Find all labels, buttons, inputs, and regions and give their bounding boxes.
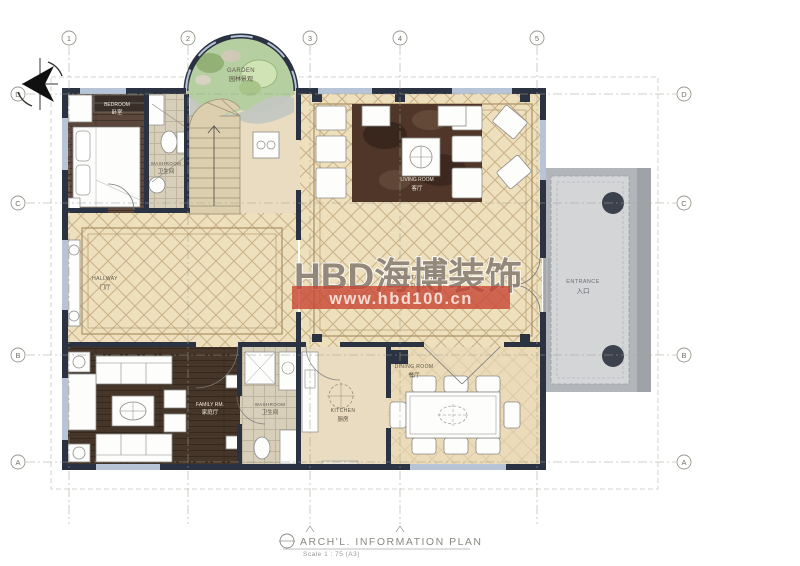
grid-bubble-col-1: 1 <box>62 31 76 45</box>
floor-plan-svg: GARDEN 园林景观 BEDROOM 卧室 WASHROOM 卫生间 LIVI… <box>0 0 800 566</box>
svg-text:3: 3 <box>308 34 312 43</box>
svg-text:A: A <box>681 458 686 467</box>
room-label-family-en: FAMILY RM. <box>196 402 224 408</box>
watermark-url: www.hbd100.cn <box>328 290 473 308</box>
sheet-title: ARCH'L. INFORMATION PLAN <box>300 536 483 548</box>
grid-bubble-row-d-left: D <box>11 87 25 101</box>
room-label-family-cn: 家庭厅 <box>202 408 219 416</box>
side-table <box>438 106 466 126</box>
room-label-garden-en: GARDEN <box>227 68 255 74</box>
grid-terminator-ticks <box>306 526 404 532</box>
room-label-hallway-en: HALLWAY <box>92 276 118 282</box>
room-label-washroom-top-cn: 卫生间 <box>158 167 175 175</box>
grid-bubble-row-a-left: A <box>11 455 25 469</box>
floor-plan-sheet: GARDEN 园林景观 BEDROOM 卧室 WASHROOM 卫生间 LIVI… <box>0 0 800 566</box>
chair <box>390 402 406 428</box>
svg-text:1: 1 <box>67 34 71 43</box>
north-arrow-icon <box>18 58 62 110</box>
room-label-washroom-bottom-en: WASHROOM <box>255 402 286 407</box>
svg-text:A: A <box>15 458 20 467</box>
stairs <box>189 99 240 214</box>
svg-text:2: 2 <box>186 34 190 43</box>
vanity <box>148 95 164 125</box>
armchair <box>452 136 482 162</box>
svg-text:4: 4 <box>398 34 402 43</box>
room-label-living-en: LIVING ROOM <box>400 177 433 183</box>
svg-text:B: B <box>681 351 686 360</box>
toilet <box>161 131 177 153</box>
chair <box>476 438 500 454</box>
grid-bubble-row-d-right: D <box>677 87 691 101</box>
chair <box>412 438 436 454</box>
grid-bubble-row-a-right: A <box>677 455 691 469</box>
side-table <box>362 106 390 126</box>
room-label-dining-en: DINING ROOM <box>395 364 434 370</box>
room-label-hallway-cn: 门厅 <box>99 283 111 291</box>
grid-bubble-row-b-right: B <box>677 348 691 362</box>
room-label-garden-cn: 园林景观 <box>229 75 253 83</box>
bedroom-furniture <box>68 95 146 210</box>
svg-text:5: 5 <box>535 34 539 43</box>
dining-table <box>406 392 500 438</box>
room-label-bedroom-en: BEDROOM <box>104 102 130 108</box>
room-label-entrance-cn: 入口 <box>577 287 590 295</box>
armchair <box>316 106 346 130</box>
sofa <box>68 374 96 430</box>
grid-bubble-row-c-right: C <box>677 196 691 210</box>
sink <box>149 177 165 193</box>
room-label-washroom-bottom-cn: 卫生间 <box>262 408 279 416</box>
grid-bubble-col-2: 2 <box>181 31 195 45</box>
hallway-console <box>68 240 80 326</box>
armchair <box>316 136 346 162</box>
svg-text:C: C <box>681 199 687 208</box>
svg-text:D: D <box>681 90 687 99</box>
title-block: ARCH'L. INFORMATION PLAN Scale 1 : 75 (A… <box>279 526 483 558</box>
speaker <box>68 444 90 462</box>
porch-column <box>602 345 624 367</box>
grid-bubble-row-c-left: C <box>11 196 25 210</box>
room-label-washroom-top-en: WASHROOM <box>151 161 182 166</box>
wardrobe <box>68 95 92 122</box>
sofa <box>316 168 346 198</box>
chair <box>444 438 468 454</box>
grid-bubble-row-b-left: B <box>11 348 25 362</box>
bed <box>73 127 140 207</box>
grid-column-bubbles: 1 2 3 4 5 <box>62 31 544 45</box>
room-label-living-cn: 客厅 <box>411 184 423 192</box>
room-label-kitchen-cn: 厨房 <box>337 415 349 423</box>
center-table <box>402 138 440 176</box>
room-label-bedroom-cn: 卧室 <box>111 108 123 116</box>
sofa <box>452 168 482 198</box>
grid-bubble-col-3: 3 <box>303 31 317 45</box>
room-label-entrance-en: ENTRANCE <box>566 279 599 285</box>
svg-text:B: B <box>15 351 20 360</box>
sofa <box>96 434 172 462</box>
sofa <box>96 356 172 384</box>
chair <box>476 376 500 392</box>
side-table <box>164 390 186 408</box>
grid-bubble-col-4: 4 <box>393 31 407 45</box>
chair <box>504 402 520 428</box>
bathtub <box>280 430 297 464</box>
coffee-table <box>112 396 154 426</box>
side-table <box>164 414 186 432</box>
room-label-kitchen-en: KITCHEN <box>331 408 356 414</box>
foyer-table <box>253 132 279 158</box>
vanity <box>279 352 297 390</box>
room-label-dining-cn: 餐厅 <box>408 371 420 379</box>
sheet-scale: Scale 1 : 75 (A3) <box>303 551 360 558</box>
watermark: HBD海博装饰 www.hbd100.cn <box>292 256 522 309</box>
toilet <box>254 437 270 459</box>
grid-bubble-col-5: 5 <box>530 31 544 45</box>
svg-text:C: C <box>15 199 21 208</box>
